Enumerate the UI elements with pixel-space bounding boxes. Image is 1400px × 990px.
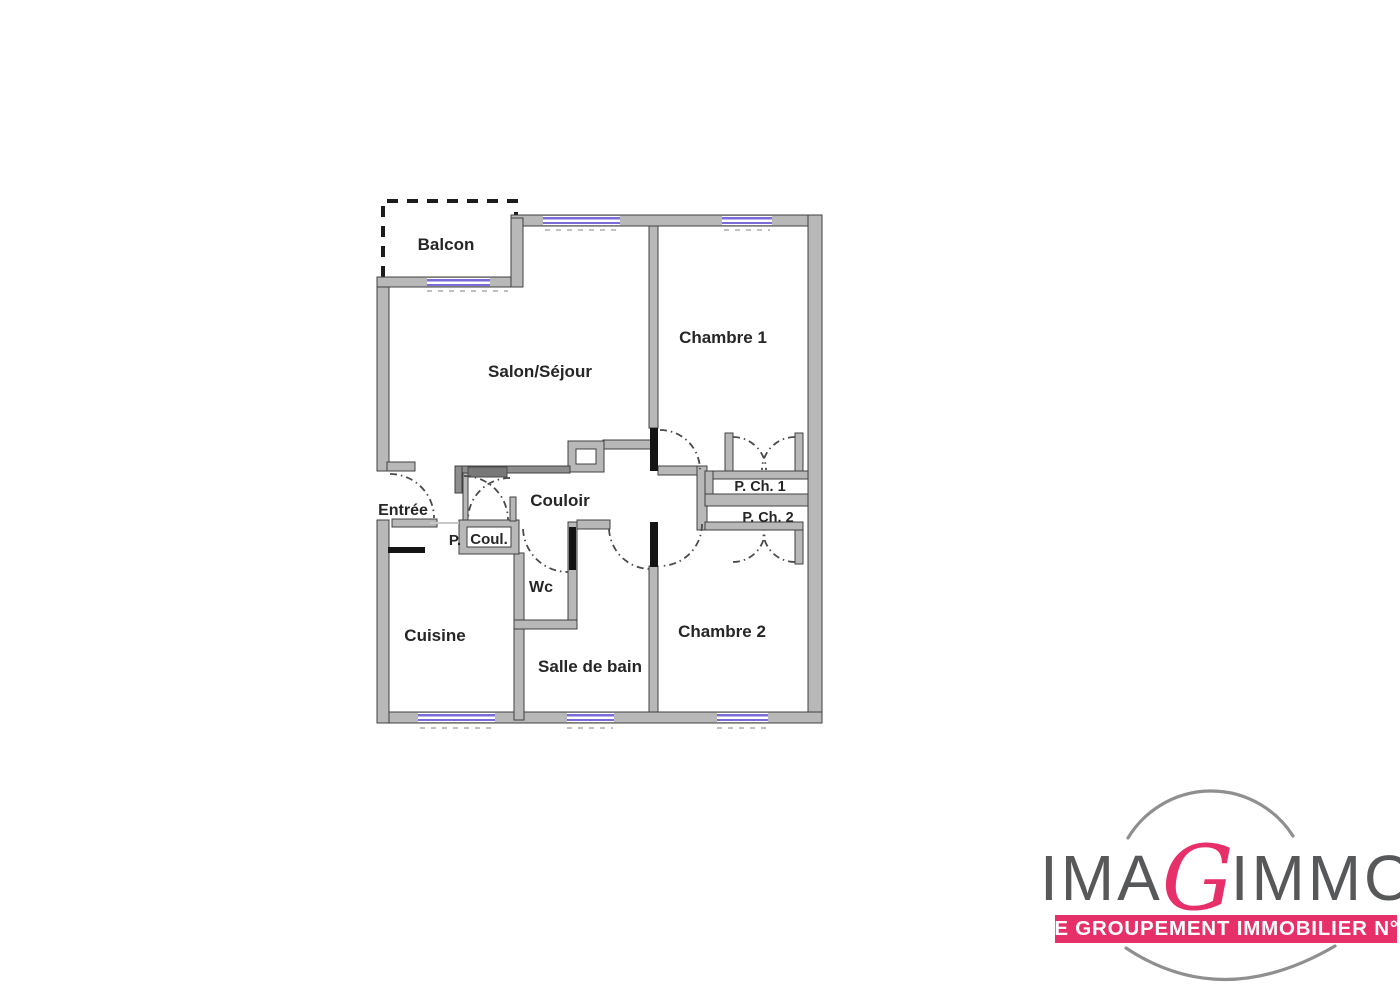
stub-closet1-right (795, 433, 803, 471)
wall-couloir-top-right (603, 440, 652, 449)
arc-wc-door (523, 529, 568, 572)
arc-chambre1-door (660, 430, 700, 470)
arc-placard-couloir-left (464, 476, 508, 520)
door-leaf-cuisine (388, 547, 425, 553)
label-salon: Salon/Séjour (488, 362, 592, 381)
label-placard-chambre2: P. Ch. 2 (742, 510, 793, 526)
wall-left-upper (377, 277, 389, 471)
wall-salon-chambre1 (649, 226, 658, 428)
label-cuisine: Cuisine (404, 626, 465, 645)
arc-closet1-left (733, 437, 766, 470)
arc-closet1-right (762, 437, 795, 470)
arc-sdb-door (609, 529, 649, 569)
label-couloir: Couloir (530, 491, 590, 510)
wall-wc-bottom (514, 620, 577, 629)
brand-text-pre: IMA (1040, 842, 1163, 914)
wall-right (808, 215, 822, 723)
wall-pch1-top (705, 471, 808, 479)
stub-closet1-left (725, 433, 733, 471)
door-leaf-chambre2 (650, 522, 658, 567)
door-leaf-chambre1 (650, 428, 658, 471)
brand-wordmark: IMAGIMMO (1040, 834, 1400, 914)
wall-cuisine-sdb (514, 553, 524, 720)
window-sdb (567, 713, 614, 722)
thin-wall-closet-right (510, 497, 516, 521)
brand-text-post: IMMO (1231, 842, 1400, 914)
agency-logo: IMAGIMMO LE GROUPEMENT IMMOBILIER N°1 (1040, 782, 1400, 988)
label-salle-de-bain: Salle de bain (538, 657, 642, 676)
brand-tagline-banner: LE GROUPEMENT IMMOBILIER N°1 (1055, 915, 1397, 943)
arc-closet2-right (763, 530, 795, 562)
label-chambre2: Chambre 2 (678, 622, 766, 641)
duct-box-interior (576, 449, 596, 464)
wall-step (511, 218, 523, 287)
arc-placard-couloir-right (468, 478, 510, 520)
label-wc: Wc (529, 579, 553, 596)
window-chambre2 (717, 713, 768, 722)
wall-sdb-top (577, 520, 610, 529)
brand-tagline: LE GROUPEMENT IMMOBILIER N°1 (1041, 917, 1400, 941)
label-placard-chambre1: P. Ch. 1 (734, 479, 785, 495)
thin-wall-closet-left (463, 473, 468, 520)
wall-left-lower (377, 520, 389, 723)
door-leaf-wc (569, 527, 576, 570)
window-salon (543, 216, 620, 225)
label-balcon: Balcon (418, 235, 475, 254)
label-placard-couloir-p: P. (449, 532, 461, 549)
label-placard-couloir: Coul. (470, 531, 508, 548)
stub-closet2-right (795, 530, 803, 564)
arc-chambre2-door (660, 524, 702, 566)
window-cuisine (418, 713, 495, 722)
threshold-bar (468, 467, 507, 477)
arc-closet2-left (733, 530, 765, 562)
label-entree: Entrée (378, 502, 428, 519)
logo-arc-bottom (1126, 946, 1335, 980)
walls (377, 215, 822, 723)
window-chambre1 (722, 216, 772, 225)
wall-pch-middle (705, 494, 808, 506)
wall-sdb-chambre2 (649, 566, 658, 712)
label-chambre1: Chambre 1 (679, 328, 767, 347)
window-balcon (427, 278, 490, 286)
stub-entree-top (387, 462, 415, 471)
wall-couloir-corner-stub (455, 466, 462, 493)
wall-couloir-nook (658, 466, 702, 475)
